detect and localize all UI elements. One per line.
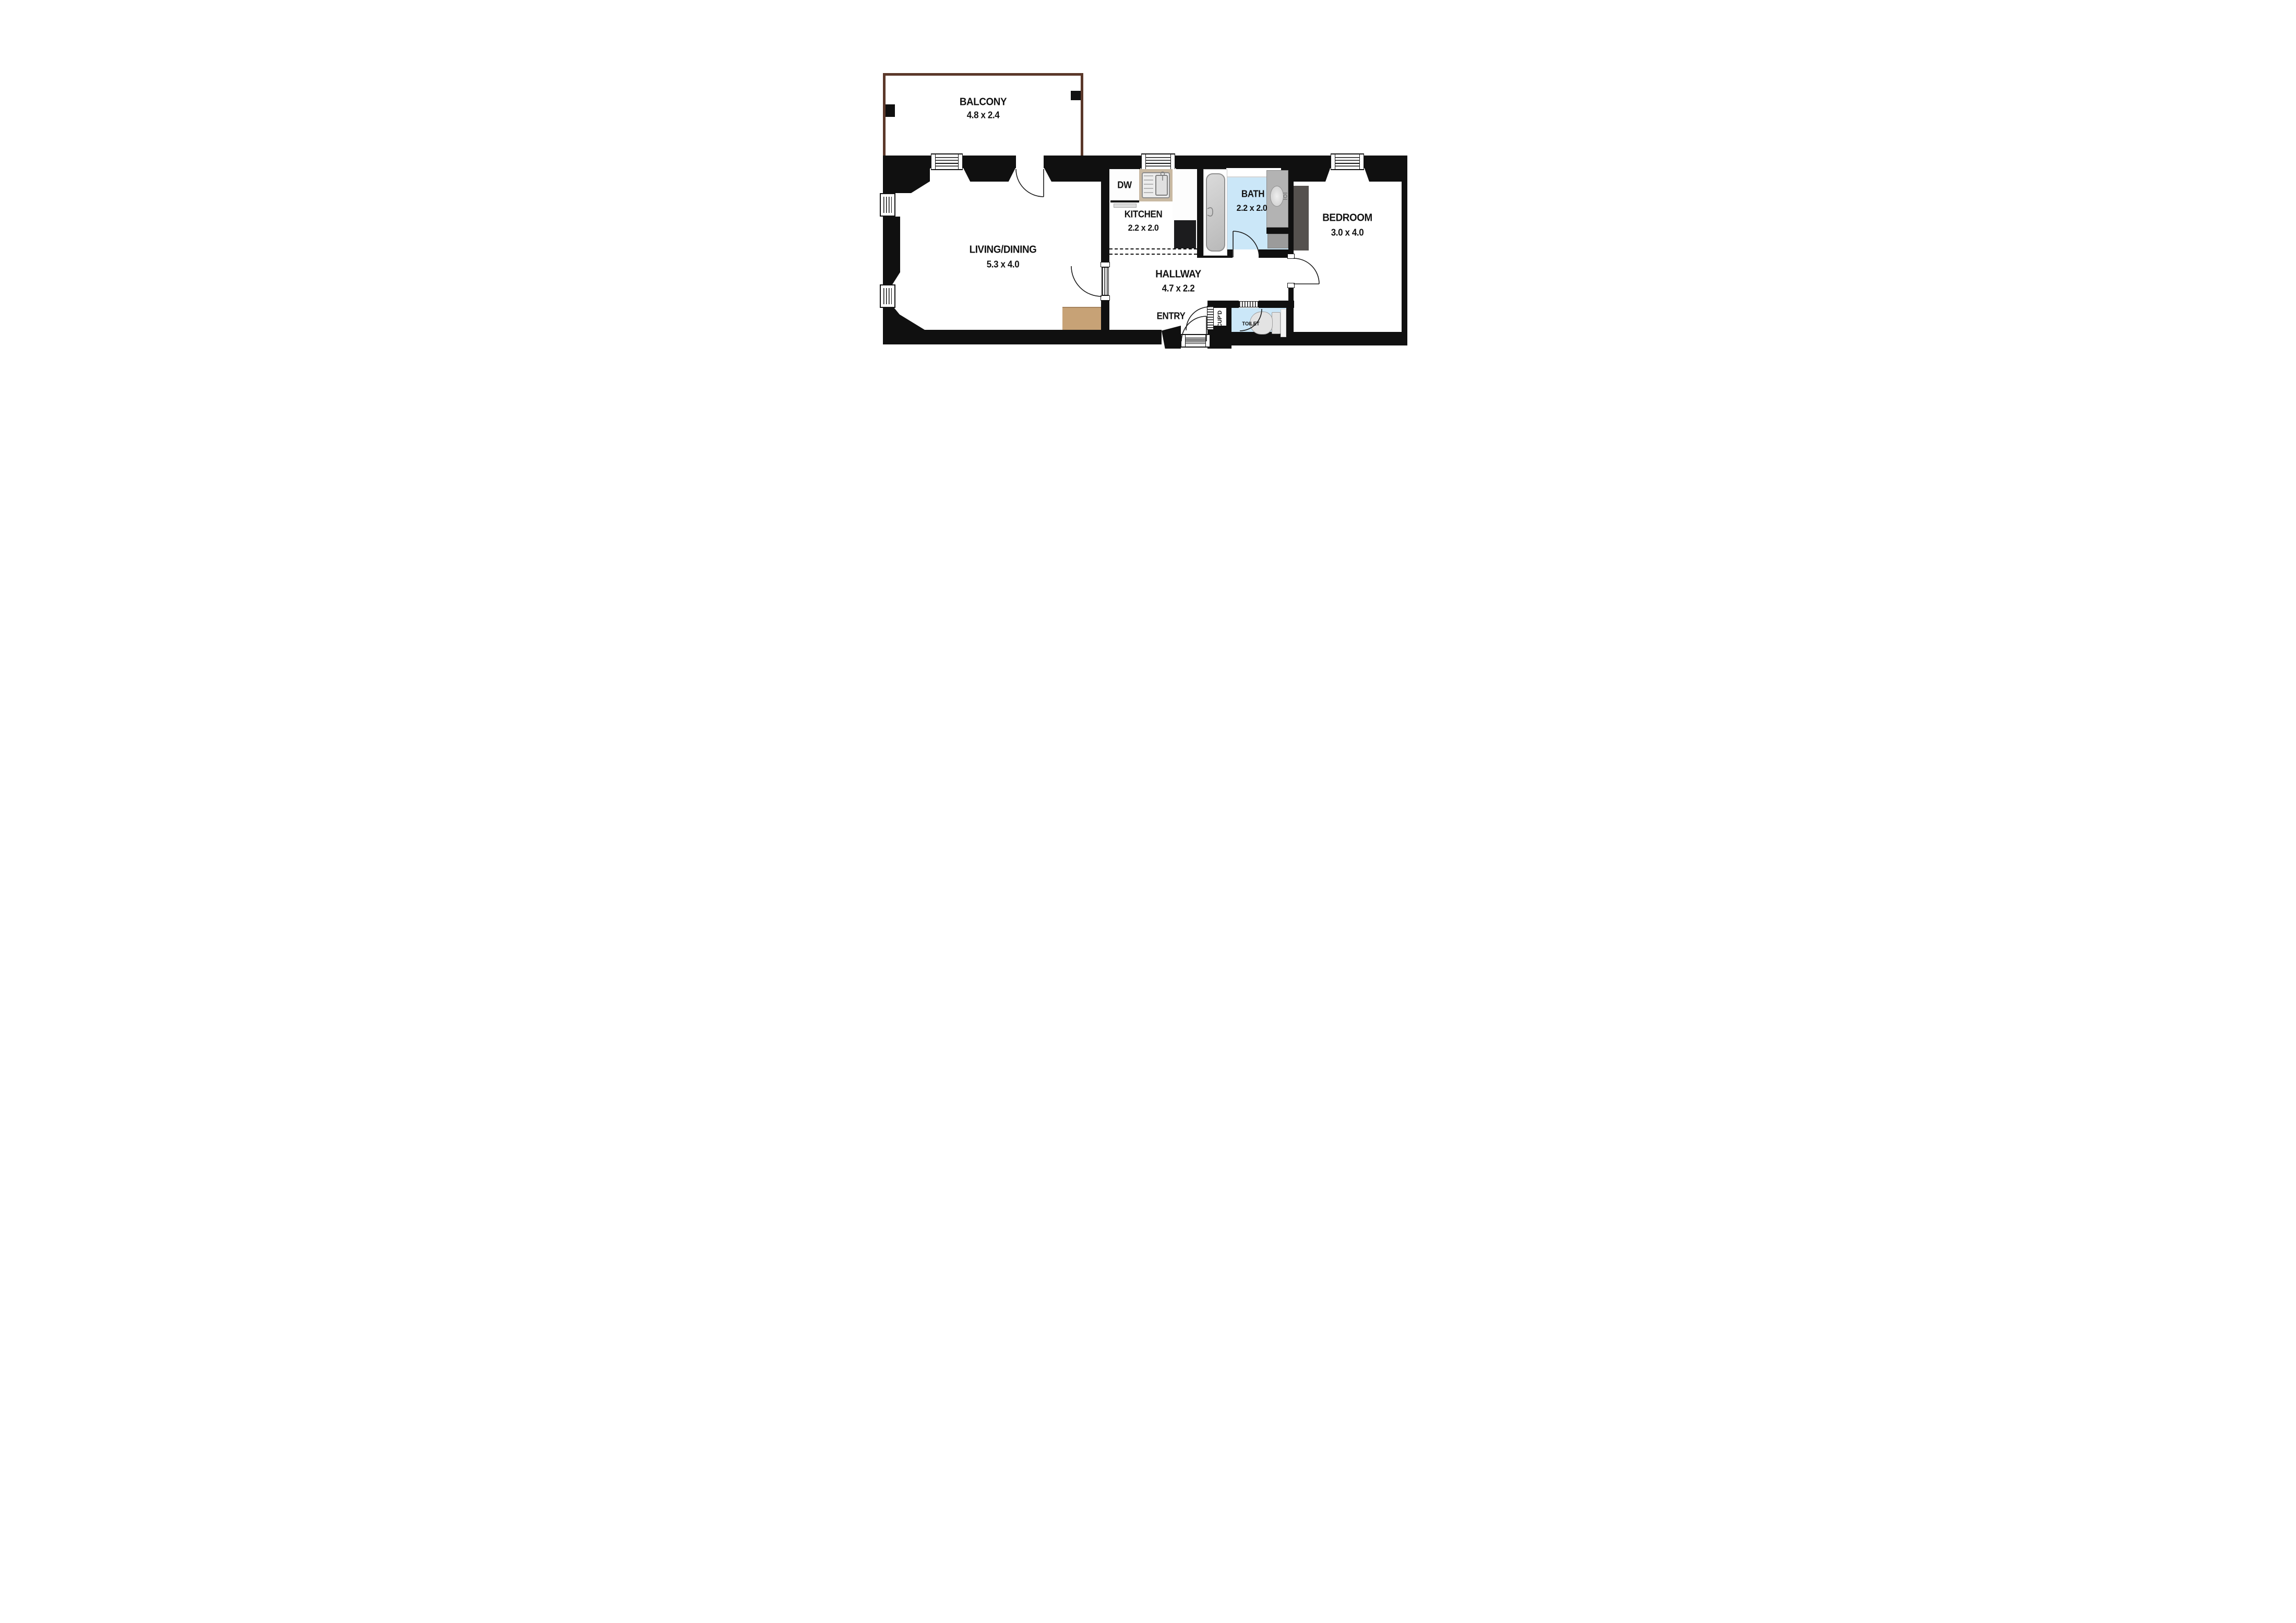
- cupboard-door-arc-icon: [1186, 307, 1210, 330]
- bedroom-window: [1331, 153, 1364, 170]
- wall-bottom-right: [1226, 332, 1407, 345]
- door-frame: [1101, 295, 1110, 301]
- bath-doorway: [1233, 249, 1259, 258]
- wall-cupboard-toilet: [1226, 301, 1231, 344]
- wall-pier: [1364, 167, 1407, 182]
- kitchen-open-counter-dashed: [1109, 248, 1197, 255]
- cooktop: [1174, 220, 1196, 248]
- living-window-left-1: [880, 193, 895, 217]
- kitchen-shelf: [1114, 204, 1137, 208]
- bath-label: BATH: [1241, 189, 1264, 200]
- bedroom-dims: 3.0 x 4.0: [1331, 228, 1364, 238]
- bedroom-door-arc-icon: [1294, 258, 1319, 284]
- balcony-label: BALCONY: [960, 97, 1007, 109]
- living-label: LIVING/DINING: [970, 244, 1037, 256]
- wall-mass: [883, 167, 930, 193]
- entry-porch-left: [1162, 326, 1181, 349]
- hallway-dims: 4.7 x 2.2: [1162, 283, 1194, 294]
- sideboard: [1062, 307, 1101, 330]
- balcony-post-right: [1071, 91, 1081, 100]
- bathtub: [1206, 173, 1225, 252]
- kitchen-window: [1141, 153, 1175, 170]
- living-hall-door-leaf: [1102, 267, 1109, 295]
- living-window-left-2: [880, 284, 895, 308]
- living-dims: 5.3 x 4.0: [987, 259, 1019, 270]
- hallway-label: HALLWAY: [1155, 269, 1201, 281]
- balcony-wall-top: [883, 73, 1083, 76]
- dishwasher-label: DW: [1117, 180, 1131, 191]
- wardrobe: [1294, 186, 1309, 250]
- balcony-door-arc-icon: [1016, 169, 1044, 197]
- kitchen-label: KITCHEN: [1125, 209, 1163, 220]
- entry-door-sill: [1181, 334, 1210, 348]
- wall-living-hall-upper: [1101, 167, 1109, 266]
- sink-basin: [1155, 175, 1168, 196]
- living-hall-door-arc-icon: [1071, 266, 1102, 296]
- wall-living-hall-lower: [1101, 296, 1109, 331]
- kitchen-dims: 2.2 x 2.0: [1128, 223, 1159, 233]
- wall-mass: [883, 217, 900, 284]
- bedroom-label: BEDROOM: [1322, 212, 1372, 224]
- sink-drainer: [1144, 175, 1153, 195]
- vanity-basin: [1270, 186, 1284, 207]
- door-frame: [1287, 254, 1295, 259]
- wall-vanity-stub: [1266, 228, 1294, 234]
- balcony-wall-right: [1081, 73, 1083, 156]
- balcony-dims: 4.8 x 2.4: [967, 110, 999, 121]
- cupboard-label: CUP'D: [1217, 311, 1223, 327]
- balcony-doorway: [1016, 156, 1044, 168]
- bath-dims: 2.2 x 2.0: [1237, 203, 1267, 213]
- wall-pier: [963, 167, 1016, 182]
- wall-mass: [883, 308, 925, 330]
- entry-label: ENTRY: [1157, 311, 1186, 322]
- wall-toilet-right: [1286, 301, 1294, 332]
- door-frame: [1287, 283, 1295, 288]
- dishwasher-divider: [1110, 200, 1139, 202]
- toilet-panel: [1281, 309, 1286, 337]
- toilet-door-louver: [1239, 301, 1259, 307]
- toilet-label: TOILET: [1242, 321, 1259, 327]
- door-frame: [1101, 262, 1110, 267]
- cupboard-door-louver: [1207, 306, 1214, 330]
- balcony-post-left: [886, 104, 895, 117]
- wall-bottom-living: [883, 330, 1162, 344]
- toilet-cistern: [1272, 312, 1281, 334]
- under-vanity-cabinet: [1267, 234, 1288, 248]
- living-window-top: [931, 153, 963, 170]
- floor-plan: BALCONY 4.8 x 2.4 LIVING/DINING 5.3 x 4.…: [861, 10, 1435, 416]
- wall-kitchen-bath: [1197, 167, 1203, 258]
- wall-bath-bedroom: [1288, 167, 1294, 258]
- wall-right: [1402, 156, 1407, 345]
